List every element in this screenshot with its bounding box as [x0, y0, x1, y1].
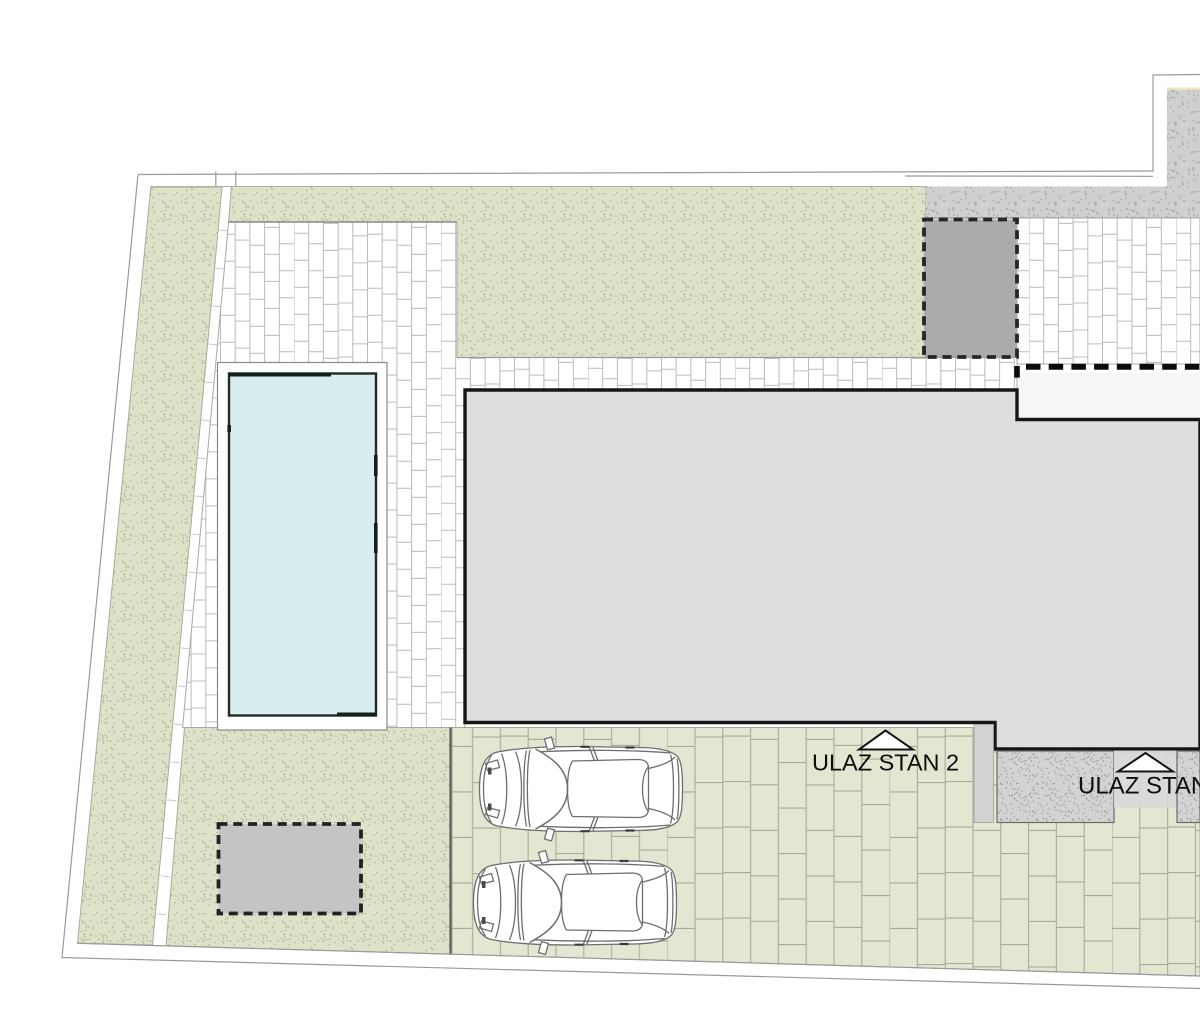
svg-text:ULAZ STAN 2: ULAZ STAN 2	[812, 750, 959, 776]
svg-text:ULAZ STAN 1: ULAZ STAN 1	[1078, 773, 1200, 800]
